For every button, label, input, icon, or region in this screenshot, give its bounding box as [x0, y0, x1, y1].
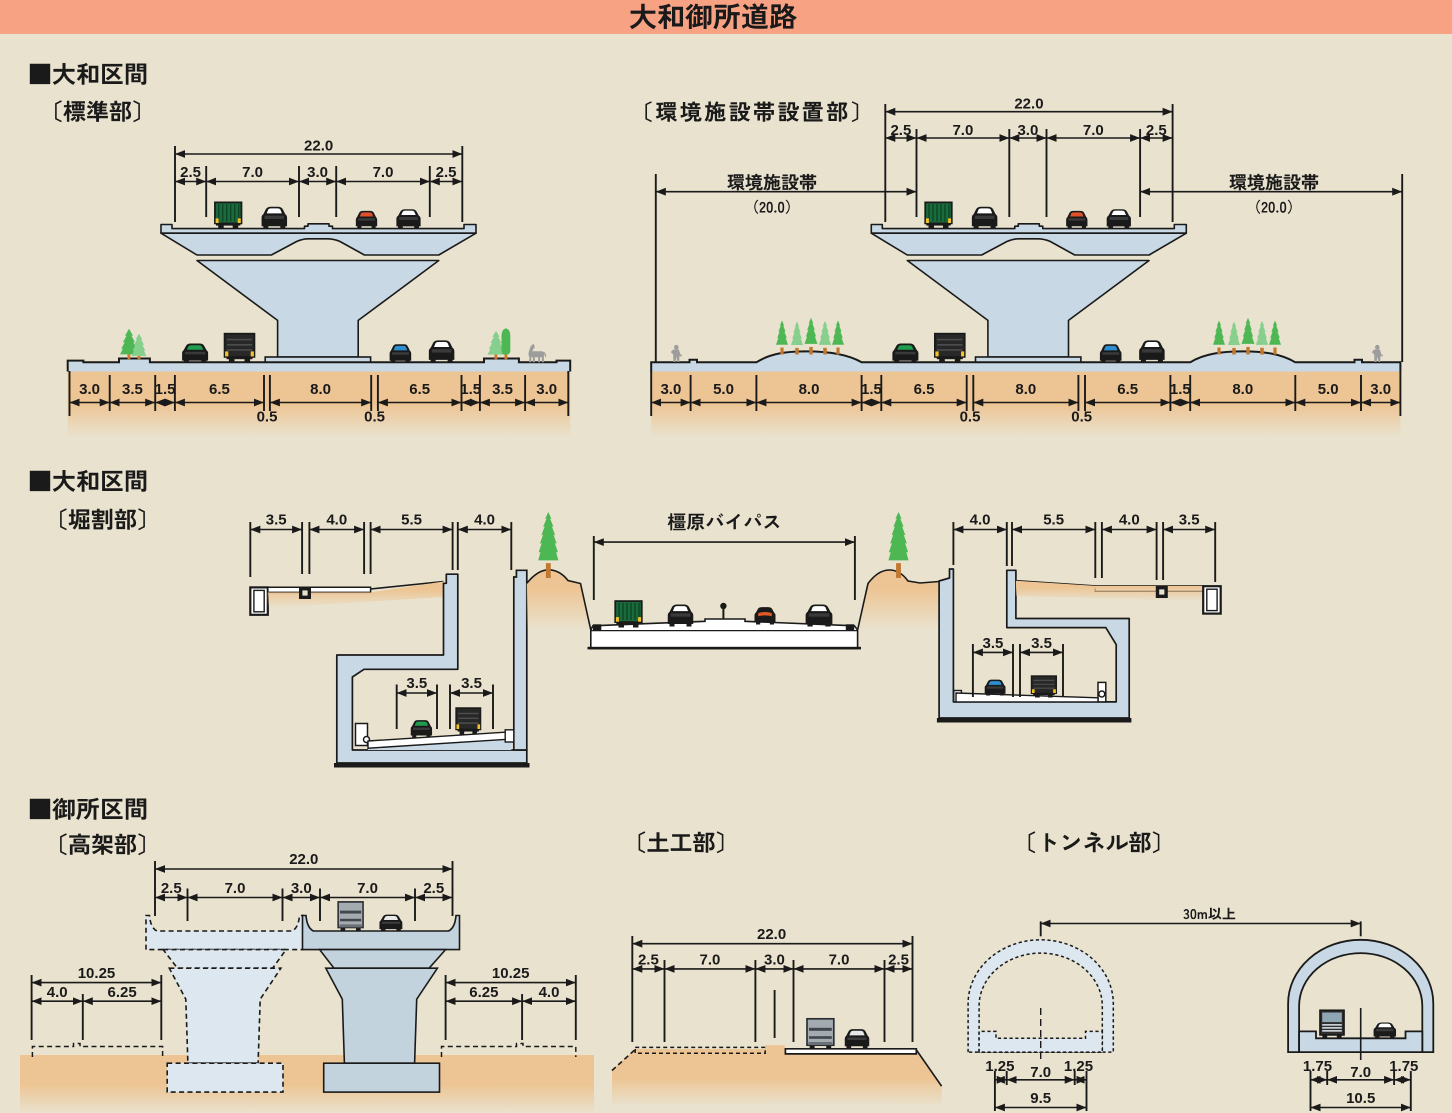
- svg-text:1.5: 1.5: [861, 381, 882, 398]
- svg-text:6.5: 6.5: [914, 381, 935, 398]
- svg-text:6.25: 6.25: [107, 984, 136, 1001]
- svg-text:1.5: 1.5: [460, 381, 481, 398]
- svg-text:7.0: 7.0: [242, 164, 263, 181]
- svg-text:3.5: 3.5: [1031, 635, 1052, 652]
- svg-text:6.5: 6.5: [209, 381, 230, 398]
- svg-text:1.5: 1.5: [155, 381, 176, 398]
- svg-text:3.0: 3.0: [1370, 381, 1391, 398]
- svg-text:22.0: 22.0: [1014, 95, 1043, 112]
- svg-text:8.0: 8.0: [1015, 381, 1036, 398]
- svg-text:5.5: 5.5: [401, 512, 422, 529]
- svg-text:7.0: 7.0: [1350, 1064, 1371, 1081]
- svg-text:3.5: 3.5: [461, 675, 482, 692]
- svg-text:5.0: 5.0: [713, 381, 734, 398]
- svg-text:3.0: 3.0: [307, 164, 328, 181]
- svg-text:2.5: 2.5: [638, 951, 659, 968]
- svg-text:7.0: 7.0: [357, 880, 378, 897]
- svg-text:2.5: 2.5: [161, 880, 182, 897]
- svg-text:5.5: 5.5: [1043, 512, 1064, 529]
- svg-text:4.0: 4.0: [47, 984, 68, 1001]
- svg-text:6.25: 6.25: [469, 984, 498, 1001]
- svg-text:22.0: 22.0: [289, 851, 318, 868]
- svg-text:8.0: 8.0: [799, 381, 820, 398]
- svg-text:3.0: 3.0: [291, 880, 312, 897]
- svg-text:4.0: 4.0: [539, 984, 560, 1001]
- svg-text:1.25: 1.25: [985, 1058, 1014, 1075]
- svg-text:4.0: 4.0: [326, 512, 347, 529]
- svg-text:3.0: 3.0: [660, 381, 681, 398]
- svg-text:7.0: 7.0: [225, 880, 246, 897]
- svg-text:3.5: 3.5: [406, 675, 427, 692]
- svg-text:2.5: 2.5: [890, 122, 911, 139]
- svg-text:1.25: 1.25: [1064, 1058, 1093, 1075]
- svg-text:3.0: 3.0: [1017, 122, 1038, 139]
- svg-text:7.0: 7.0: [952, 122, 973, 139]
- svg-text:0.5: 0.5: [960, 409, 981, 426]
- svg-text:6.5: 6.5: [409, 381, 430, 398]
- svg-text:1.75: 1.75: [1389, 1058, 1418, 1075]
- svg-text:10.25: 10.25: [78, 965, 116, 982]
- svg-text:10.25: 10.25: [492, 965, 530, 982]
- svg-text:3.5: 3.5: [122, 381, 143, 398]
- svg-text:4.0: 4.0: [1119, 512, 1140, 529]
- svg-text:0.5: 0.5: [1071, 409, 1092, 426]
- svg-text:2.5: 2.5: [436, 164, 457, 181]
- svg-text:6.5: 6.5: [1117, 381, 1138, 398]
- svg-text:2.5: 2.5: [1146, 122, 1167, 139]
- svg-text:5.0: 5.0: [1318, 381, 1339, 398]
- svg-text:1.75: 1.75: [1303, 1058, 1332, 1075]
- svg-text:3.5: 3.5: [1179, 512, 1200, 529]
- svg-text:3.0: 3.0: [79, 381, 100, 398]
- svg-text:2.5: 2.5: [423, 880, 444, 897]
- svg-text:7.0: 7.0: [1083, 122, 1104, 139]
- svg-text:3.5: 3.5: [983, 635, 1004, 652]
- svg-text:7.0: 7.0: [373, 164, 394, 181]
- svg-text:3.0: 3.0: [536, 381, 557, 398]
- svg-text:8.0: 8.0: [310, 381, 331, 398]
- svg-text:2.5: 2.5: [888, 951, 909, 968]
- svg-text:4.0: 4.0: [474, 512, 495, 529]
- svg-text:8.0: 8.0: [1232, 381, 1253, 398]
- svg-text:0.5: 0.5: [364, 409, 385, 426]
- svg-text:3.5: 3.5: [492, 381, 513, 398]
- svg-text:22.0: 22.0: [304, 138, 333, 155]
- svg-text:3.0: 3.0: [764, 951, 785, 968]
- svg-text:0.5: 0.5: [257, 409, 278, 426]
- svg-text:3.5: 3.5: [266, 512, 287, 529]
- svg-text:10.5: 10.5: [1346, 1090, 1375, 1107]
- svg-text:7.0: 7.0: [1030, 1064, 1051, 1081]
- svg-text:9.5: 9.5: [1030, 1090, 1051, 1107]
- svg-text:22.0: 22.0: [757, 926, 786, 943]
- svg-text:4.0: 4.0: [970, 512, 991, 529]
- svg-text:7.0: 7.0: [829, 951, 850, 968]
- svg-text:2.5: 2.5: [180, 164, 201, 181]
- svg-text:7.0: 7.0: [700, 951, 721, 968]
- svg-text:1.5: 1.5: [1170, 381, 1191, 398]
